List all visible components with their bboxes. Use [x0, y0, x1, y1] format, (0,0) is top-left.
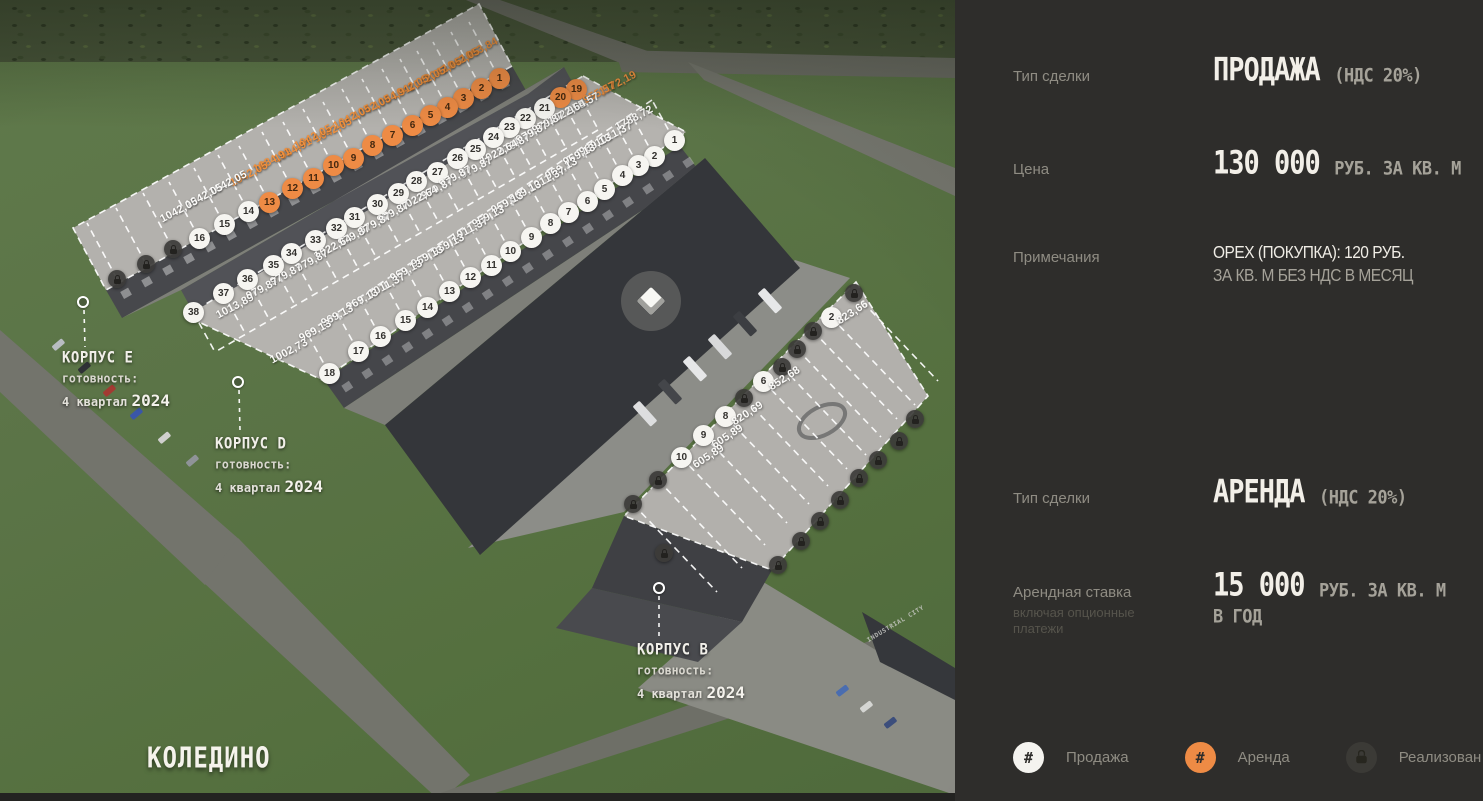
- rent-type-value: АРЕНДА (НДС 20%): [1213, 480, 1407, 511]
- building-leader-dot-B: [653, 582, 665, 594]
- rent-type-text: АРЕНДА: [1213, 474, 1305, 511]
- unit-marker-D-12[interactable]: 12: [460, 267, 481, 288]
- sold-unit-marker[interactable]: [811, 512, 829, 530]
- notes-line1: OPEX (ПОКУПКА): 120 РУБ.: [1213, 243, 1405, 264]
- info-panel: Тип сделки ПРОДАЖА (НДС 20%) Цена 130 00…: [955, 0, 1483, 801]
- unit-marker-D-7[interactable]: 7: [558, 202, 579, 223]
- site-map[interactable]: INDUSTRIAL CITY 123456789101112131415161…: [0, 0, 955, 801]
- unit-marker-E-11[interactable]: 11: [303, 168, 324, 189]
- unit-marker-E-2[interactable]: 2: [471, 78, 492, 99]
- legend-item-rent[interactable]: # Аренда: [1185, 742, 1290, 773]
- lock-icon: [1346, 742, 1377, 773]
- notes-value: OPEX (ПОКУПКА): 120 РУБ. ЗА КВ. М БЕЗ НД…: [1213, 243, 1413, 284]
- price-value: 130 000 РУБ. ЗА КВ. М: [1213, 151, 1461, 182]
- unit-marker-E-6[interactable]: 6: [402, 115, 423, 136]
- building-label-B: КОРПУС Bготовность:4 квартал 2024: [637, 642, 745, 703]
- notes-label: Примечания: [1013, 249, 1100, 266]
- unit-marker-E-10[interactable]: 10: [323, 155, 344, 176]
- sold-unit-marker[interactable]: [624, 495, 642, 513]
- unit-marker-B-10[interactable]: 10: [671, 447, 692, 468]
- legend-label-sold: Реализован: [1399, 749, 1482, 766]
- sold-unit-marker[interactable]: [108, 270, 126, 288]
- unit-marker-D-1[interactable]: 1: [664, 130, 685, 151]
- notes-line2: ЗА КВ. М БЕЗ НДС В МЕСЯЦ: [1213, 266, 1413, 287]
- sold-unit-marker[interactable]: [788, 340, 806, 358]
- legend-item-sold[interactable]: Реализован: [1346, 742, 1482, 773]
- unit-marker-D-38[interactable]: 38: [183, 302, 204, 323]
- unit-marker-E-8[interactable]: 8: [362, 135, 383, 156]
- project-title: КОЛЕДИНО: [147, 741, 271, 775]
- unit-marker-E-14[interactable]: 14: [238, 201, 259, 222]
- unit-marker-E-13[interactable]: 13: [259, 192, 280, 213]
- sale-type-value: ПРОДАЖА (НДС 20%): [1213, 58, 1422, 89]
- unit-marker-E-15[interactable]: 15: [214, 214, 235, 235]
- rent-legend-icon: #: [1185, 742, 1216, 773]
- sale-type-text: ПРОДАЖА: [1213, 52, 1320, 89]
- sale-legend-icon: #: [1013, 742, 1044, 773]
- rate-unit2: В ГОД: [1213, 606, 1262, 628]
- map-legend: # Продажа # Аренда Реализован: [1013, 742, 1433, 773]
- app-window: INDUSTRIAL CITY 123456789101112131415161…: [0, 0, 1483, 801]
- sold-complex-circle[interactable]: [621, 271, 681, 331]
- sold-unit-marker[interactable]: [869, 451, 887, 469]
- rent-type-label: Тип сделки: [1013, 490, 1090, 507]
- sale-vat-note: (НДС 20%): [1334, 65, 1422, 87]
- price-label: Цена: [1013, 161, 1049, 178]
- sold-unit-marker[interactable]: [649, 471, 667, 489]
- rate-number: 15 000: [1213, 567, 1305, 604]
- unit-marker-D-16[interactable]: 16: [370, 326, 391, 347]
- sold-unit-marker[interactable]: [804, 322, 822, 340]
- building-label-E: КОРПУС Eготовность:4 квартал 2024: [62, 350, 170, 411]
- sold-unit-marker[interactable]: [137, 255, 155, 273]
- unit-marker-E-9[interactable]: 9: [343, 148, 364, 169]
- price-unit: РУБ. ЗА КВ. М: [1334, 158, 1461, 180]
- rate-label: Арендная ставка: [1013, 584, 1131, 601]
- unit-marker-E-16[interactable]: 16: [189, 228, 210, 249]
- unit-marker-E-5[interactable]: 5: [420, 105, 441, 126]
- unit-marker-E-12[interactable]: 12: [282, 178, 303, 199]
- sold-unit-marker[interactable]: [655, 544, 673, 562]
- unit-marker-E-7[interactable]: 7: [382, 125, 403, 146]
- building-leader-dot-D: [232, 376, 244, 388]
- legend-label-sale: Продажа: [1066, 749, 1129, 766]
- sold-unit-marker[interactable]: [906, 410, 924, 428]
- unit-marker-D-10[interactable]: 10: [500, 241, 521, 262]
- unit-marker-E-1[interactable]: 1: [489, 68, 510, 89]
- sold-unit-marker[interactable]: [831, 491, 849, 509]
- building-leader-dot-E: [77, 296, 89, 308]
- sold-unit-marker[interactable]: [792, 532, 810, 550]
- unit-marker-D-8[interactable]: 8: [540, 213, 561, 234]
- sold-unit-marker[interactable]: [164, 240, 182, 258]
- rent-vat-note: (НДС 20%): [1319, 487, 1407, 509]
- sold-unit-marker[interactable]: [890, 432, 908, 450]
- unit-marker-D-17[interactable]: 17: [348, 341, 369, 362]
- unit-marker-D-13[interactable]: 13: [439, 281, 460, 302]
- price-number: 130 000: [1213, 145, 1320, 182]
- unit-marker-D-18[interactable]: 18: [319, 363, 340, 384]
- sold-unit-marker[interactable]: [850, 469, 868, 487]
- building-label-D: КОРПУС Dготовность:4 квартал 2024: [215, 436, 323, 497]
- unit-marker-D-14[interactable]: 14: [417, 297, 438, 318]
- unit-marker-D-6[interactable]: 6: [577, 191, 598, 212]
- sold-unit-marker[interactable]: [769, 556, 787, 574]
- unit-marker-D-9[interactable]: 9: [521, 227, 542, 248]
- unit-marker-D-15[interactable]: 15: [395, 310, 416, 331]
- unit-marker-D-4[interactable]: 4: [612, 165, 633, 186]
- legend-label-rent: Аренда: [1238, 749, 1290, 766]
- package-icon: [637, 287, 665, 315]
- unit-marker-D-11[interactable]: 11: [481, 255, 502, 276]
- sale-type-label: Тип сделки: [1013, 68, 1090, 85]
- rate-value: 15 000 РУБ. ЗА КВ. М В ГОД: [1213, 573, 1446, 628]
- rate-sublabel: включая опционные платежи: [1013, 605, 1143, 637]
- rate-unit: РУБ. ЗА КВ. М: [1319, 580, 1446, 602]
- legend-item-sale[interactable]: # Продажа: [1013, 742, 1129, 773]
